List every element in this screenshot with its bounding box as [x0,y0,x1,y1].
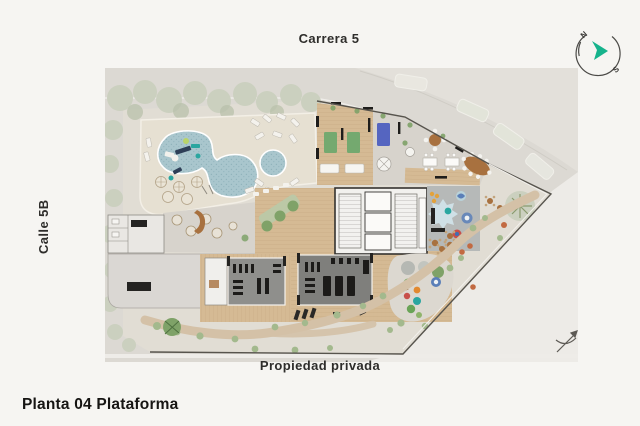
page-title: Planta 04 Plataforma [22,396,178,414]
yoga-mat [347,132,360,153]
kids-pool [260,150,286,176]
yoga-mat [324,132,337,153]
street-label-bottom: Propiedad privada [220,358,420,373]
site-plan [105,68,578,362]
compass-north-label: N [579,29,589,40]
street-label-top: Carrera 5 [229,31,429,46]
core-stairs-elevators [335,188,427,254]
exercise-mat [377,123,390,146]
floorplan-page: Carrera 5 Calle 5B N S [0,0,640,426]
restrooms [108,215,164,253]
street-label-left: Calle 5B [36,186,56,268]
compass-icon: N S [572,26,624,78]
